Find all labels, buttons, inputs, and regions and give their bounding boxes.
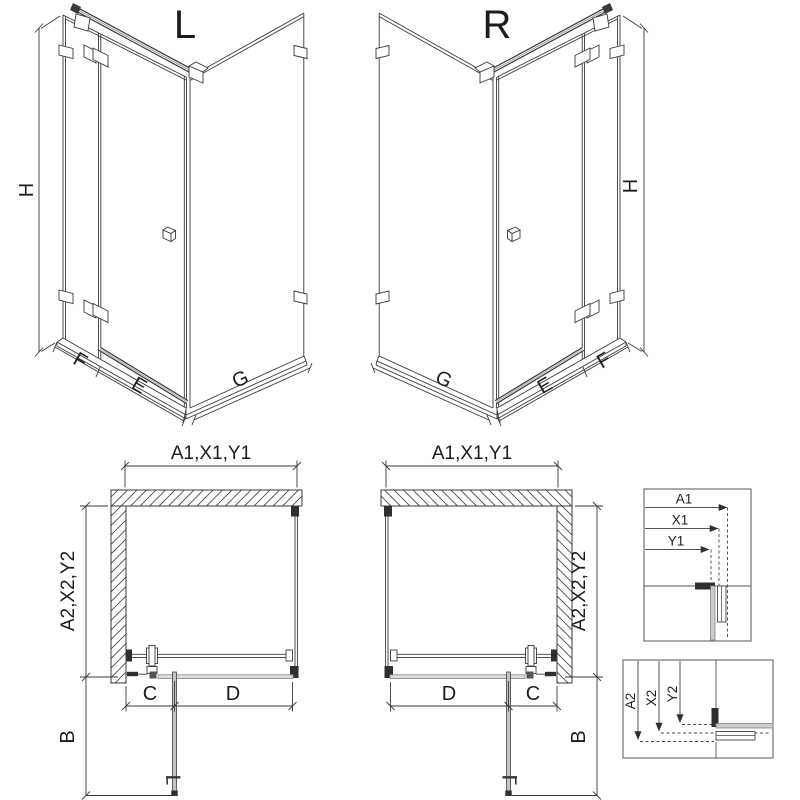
plan-dim-width-right: A1,X1,Y1: [432, 443, 512, 464]
plan-dim-depth-left: A2,X2,Y2: [58, 551, 79, 631]
detail-width-label-a1: A1: [676, 492, 693, 507]
technical-drawing-page: L R H F E G H F E G A1,X1,Y1 A2,X2,Y2 C …: [0, 0, 800, 800]
wall-profile-clamps: [59, 45, 307, 304]
version-label-left: L: [174, 3, 196, 47]
dim-label-height-left: H: [16, 183, 38, 197]
detail-depth-label-x2: X2: [644, 690, 659, 707]
dim-label-fixed-right: F: [593, 348, 615, 373]
detail-box-depth: [623, 660, 773, 758]
plan-view-left: [80, 461, 302, 800]
door-handle-knob: [163, 227, 176, 242]
dim-label-door-right: E: [534, 373, 557, 399]
detail-width-label-x1: X1: [672, 513, 689, 528]
plan-dim-width-left: A1,X1,Y1: [171, 443, 251, 464]
plan-dim-fixed-right: C: [526, 683, 540, 705]
detail-box-width: [644, 489, 751, 641]
detail-depth-label-y2: Y2: [665, 686, 680, 703]
plan-dim-swing-right: B: [568, 730, 590, 743]
glass-panel-outlines: [57, 13, 307, 419]
dim-label-fixed-left: F: [69, 348, 91, 373]
plan-dim-swing-left: B: [57, 730, 79, 743]
plan-dim-fixed-left: C: [143, 683, 157, 705]
plan-enclosure: [126, 506, 299, 796]
door-hinges: [84, 45, 108, 323]
version-label-right: R: [483, 3, 512, 47]
plan-dim-door-right: D: [442, 683, 456, 705]
shower-enclosure-drawing: L R H F E G H F E G A1,X1,Y1 A2,X2,Y2 C …: [0, 0, 800, 800]
dim-label-height-right: H: [620, 179, 642, 193]
detail-depth-label-a2: A2: [623, 693, 638, 710]
detail-width-label-y1: Y1: [668, 534, 685, 549]
plan-dim-door-left: D: [226, 683, 240, 705]
plan-dim-depth-right: A2,X2,Y2: [569, 551, 590, 631]
